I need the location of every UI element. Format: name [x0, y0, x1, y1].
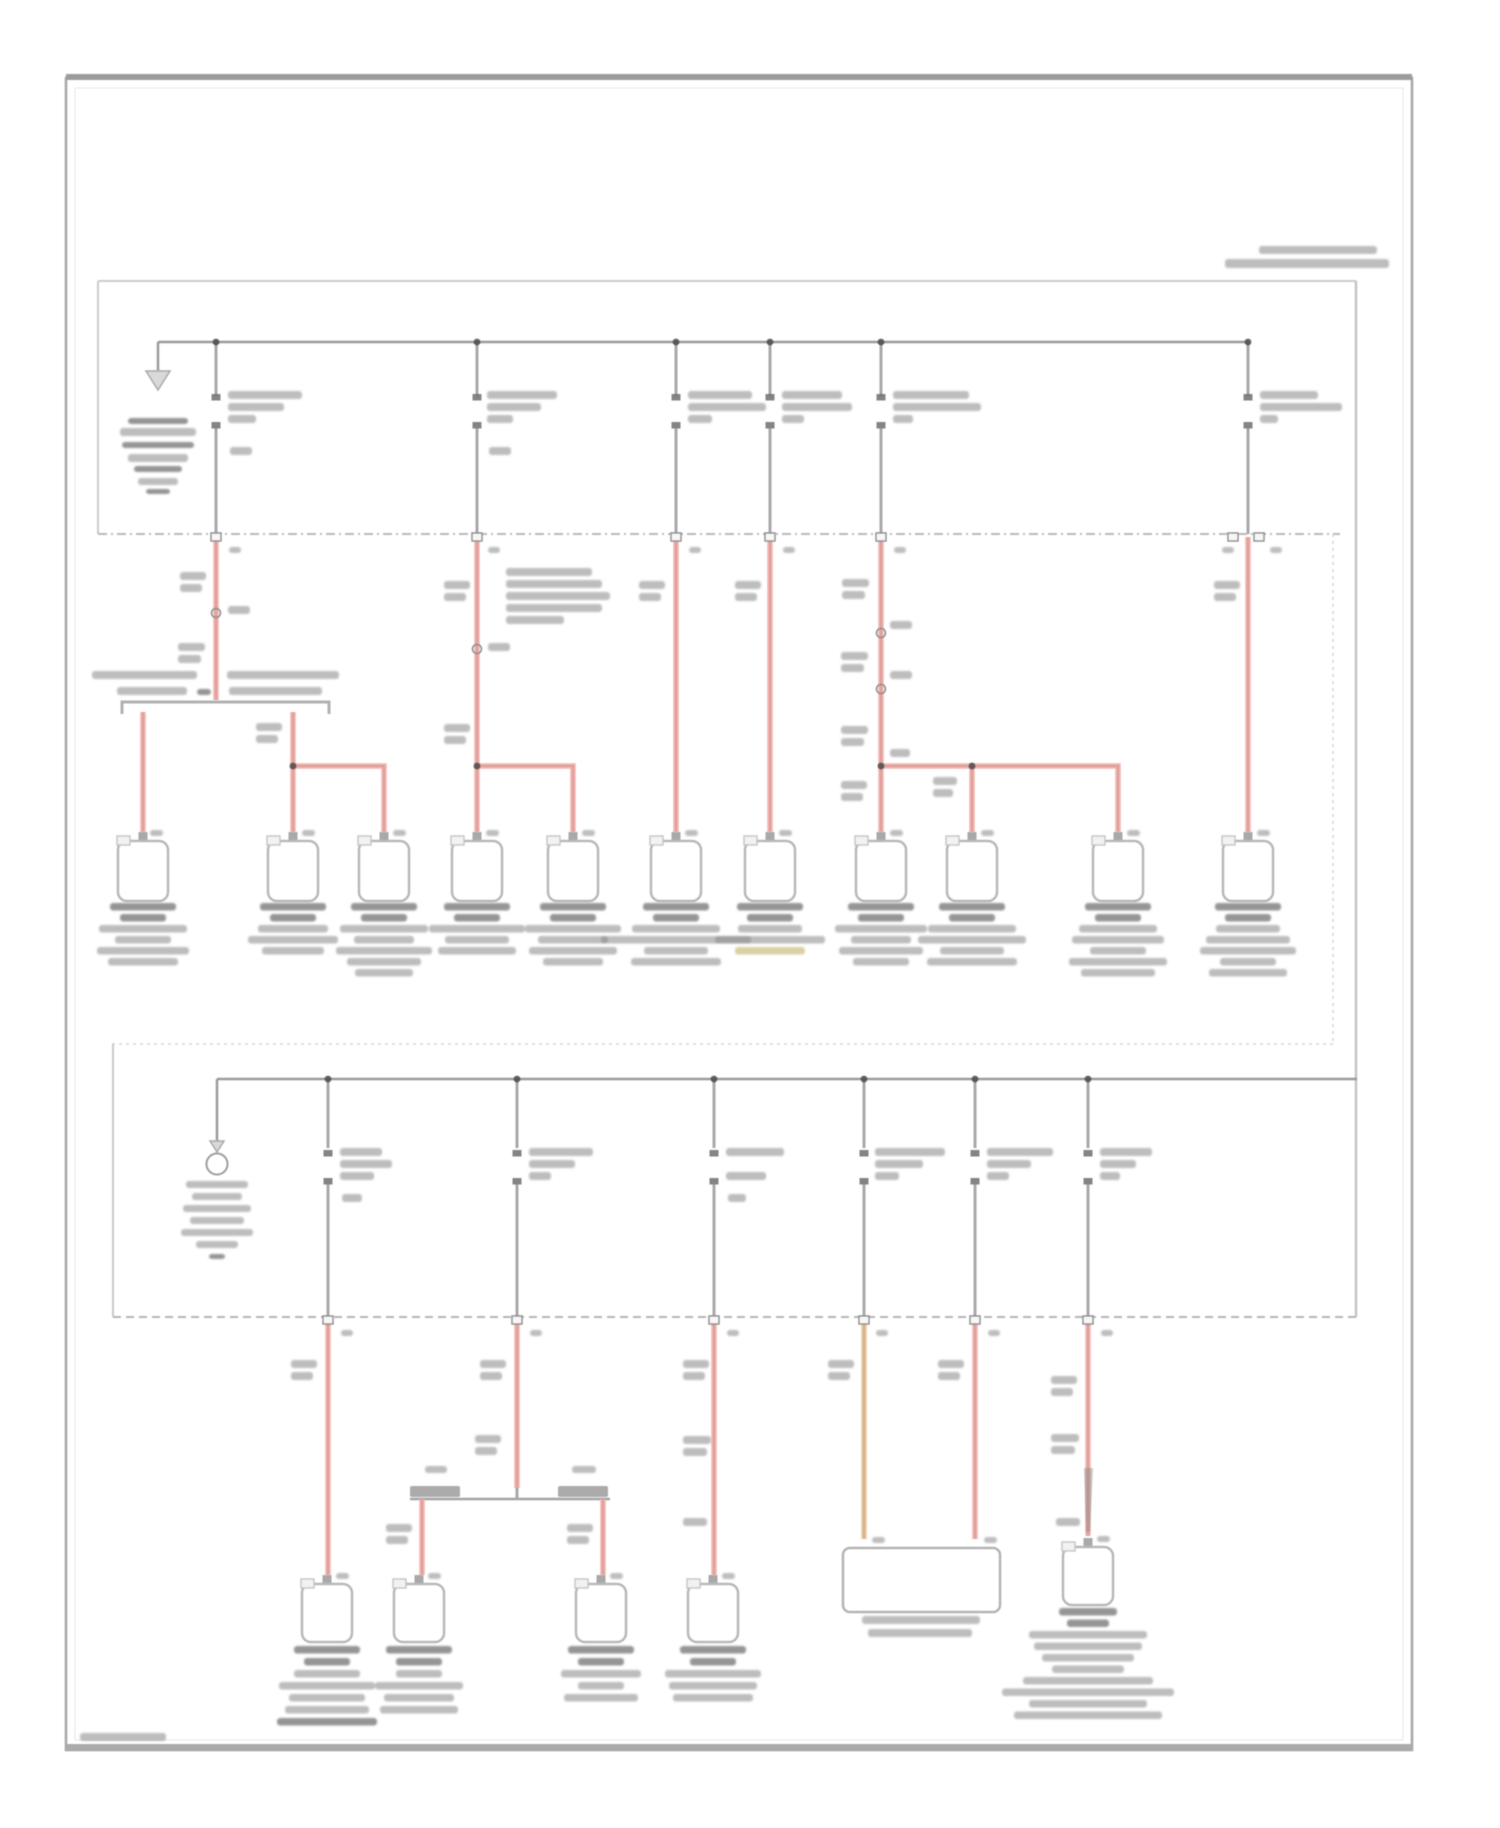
label-text-blurred [209, 1254, 225, 1259]
fuse-terminal-icon [971, 1150, 980, 1157]
junction-dot-icon [861, 1076, 868, 1083]
label-text-blurred [862, 1616, 980, 1624]
label-text-blurred [1260, 391, 1318, 399]
label-text-blurred [386, 1536, 408, 1544]
label-text-blurred [183, 1205, 251, 1212]
fuse-terminal-icon [710, 1178, 719, 1185]
component-label-text-blurred [851, 936, 911, 944]
label-text-blurred [92, 671, 197, 679]
label-text-blurred [1127, 830, 1140, 836]
connector-pin-icon [765, 533, 775, 541]
component-label-text-blurred [289, 1694, 365, 1702]
label-text-blurred [876, 1330, 888, 1336]
component-cylinder-icon [576, 1584, 626, 1642]
component-cylinder-icon [1063, 1547, 1113, 1605]
label-text-blurred [488, 643, 510, 651]
component-notch-icon [358, 836, 371, 845]
component-label-text-blurred [396, 1670, 442, 1678]
label-text-blurred [444, 724, 470, 732]
label-text-blurred [890, 671, 912, 679]
module-box-icon [843, 1548, 1000, 1612]
component-label-text-blurred [1059, 1608, 1117, 1616]
component-label-text-blurred [445, 936, 509, 944]
component-label-text-blurred [853, 958, 909, 966]
label-text-blurred [480, 1360, 506, 1368]
component-label-text-blurred [429, 925, 525, 933]
component-notch-icon [1222, 836, 1235, 845]
label-text-blurred [128, 454, 188, 462]
label-text-blurred [340, 1172, 374, 1180]
label-text-blurred [342, 1194, 362, 1202]
fuse-terminal-icon [1084, 1150, 1093, 1157]
label-text-blurred [683, 1372, 705, 1380]
fuse-terminal-icon [877, 422, 886, 429]
label-text-blurred [80, 1733, 166, 1741]
component-label-text-blurred [120, 914, 166, 922]
component-label-text-blurred [1200, 947, 1296, 955]
fuse-terminal-icon [766, 394, 775, 401]
component-notch-icon [687, 1579, 700, 1588]
junction-dot-icon [972, 1076, 979, 1083]
component-label-text-blurred [738, 925, 802, 933]
component-label-text-blurred [336, 947, 432, 955]
label-text-blurred [688, 415, 712, 423]
component-label-text-blurred [564, 1694, 638, 1702]
label-text-blurred [1097, 1536, 1110, 1542]
label-text-blurred [782, 391, 842, 399]
label-text-blurred [722, 1573, 735, 1579]
label-text-blurred [893, 403, 981, 411]
component-cylinder-icon [856, 841, 906, 901]
label-text-blurred [988, 1330, 1000, 1336]
component-label-text-blurred [665, 1670, 761, 1678]
label-text-blurred [1051, 1388, 1073, 1396]
label-text-blurred [256, 735, 278, 743]
label-text-blurred [735, 593, 757, 601]
label-text-blurred [230, 447, 252, 455]
component-label-text-blurred [304, 1658, 350, 1666]
junction-dot-icon [514, 1076, 521, 1083]
label-text-blurred [475, 1447, 497, 1455]
label-text-blurred [186, 1181, 248, 1188]
label-text-blurred [529, 1160, 575, 1168]
junction-dot-icon [878, 763, 885, 770]
component-label-text-blurred [1002, 1689, 1174, 1697]
component-notch-icon [1062, 1542, 1075, 1551]
label-text-blurred [1259, 246, 1377, 254]
component-pin-icon [473, 832, 482, 841]
label-text-blurred [487, 391, 557, 399]
component-label-text-blurred [347, 958, 421, 966]
label-text-blurred [229, 547, 241, 553]
fuse-terminal-icon [1244, 422, 1253, 429]
component-label-text-blurred [1225, 914, 1271, 922]
label-text-blurred [1051, 1446, 1075, 1454]
label-text-blurred [444, 593, 466, 601]
component-label-text-blurred [115, 936, 171, 944]
label-text-blurred [506, 568, 592, 576]
component-notch-icon [301, 1579, 314, 1588]
fuse-terminal-icon [860, 1178, 869, 1185]
label-text-blurred [1260, 415, 1278, 423]
label-text-blurred [1051, 1376, 1077, 1384]
connector-pin-icon [1083, 1316, 1093, 1324]
label-text-blurred [291, 1360, 317, 1368]
label-text-blurred [134, 466, 182, 472]
label-text-blurred [506, 604, 602, 612]
bus-bar-terminal-icon [558, 1486, 608, 1497]
label-text-blurred [683, 1518, 707, 1526]
fuse-terminal-icon [473, 394, 482, 401]
label-text-blurred [987, 1160, 1031, 1168]
label-text-blurred [529, 1172, 551, 1180]
label-text-blurred [122, 442, 194, 448]
label-text-blurred [228, 391, 302, 399]
component-notch-icon [547, 836, 560, 845]
label-text-blurred [828, 1372, 850, 1380]
label-text-blurred [828, 1360, 854, 1368]
label-text-blurred [487, 403, 541, 411]
component-label-text-blurred [444, 903, 510, 911]
junction-dot-icon [969, 763, 976, 770]
power-wire-core [881, 766, 1118, 832]
component-cylinder-icon [359, 841, 409, 901]
label-text-blurred [341, 1330, 353, 1336]
label-text-blurred [728, 1194, 746, 1202]
component-notch-icon [650, 836, 663, 845]
label-text-blurred [639, 593, 661, 601]
connector-pin-icon [970, 1316, 980, 1324]
component-label-text-blurred [550, 914, 596, 922]
label-text-blurred [1260, 403, 1342, 411]
component-label-text-blurred [294, 1646, 360, 1654]
label-text-blurred [336, 1573, 349, 1579]
label-text-blurred [782, 415, 804, 423]
component-cylinder-icon [947, 841, 997, 901]
component-label-text-blurred [1206, 936, 1290, 944]
component-cylinder-icon [745, 841, 795, 901]
fuse-terminal-icon [513, 1150, 522, 1157]
component-notch-icon [393, 1579, 406, 1588]
component-label-text-blurred [669, 1682, 757, 1690]
fuse-terminal-icon [473, 422, 482, 429]
component-label-text-blurred [396, 1658, 442, 1666]
label-text-blurred [489, 447, 511, 455]
power-wire-core [477, 766, 573, 832]
label-text-blurred [683, 1360, 709, 1368]
component-pin-icon [766, 832, 775, 841]
label-text-blurred [178, 643, 205, 651]
component-notch-icon [451, 836, 464, 845]
component-label-text-blurred [1215, 903, 1281, 911]
label-text-blurred [688, 391, 752, 399]
ground-triangle-icon [146, 371, 170, 390]
label-text-blurred [610, 1573, 623, 1579]
component-label-text-blurred [386, 1646, 452, 1654]
label-text-blurred [890, 749, 910, 757]
component-label-text-blurred [248, 936, 338, 944]
label-text-blurred [875, 1160, 923, 1168]
bus-bar-terminal-icon [410, 1486, 460, 1497]
connector-pin-icon [876, 533, 886, 541]
label-text-blurred [256, 723, 282, 731]
label-text-blurred [893, 391, 969, 399]
component-label-text-blurred [538, 936, 608, 944]
component-label-text-blurred [949, 914, 995, 922]
connector-pin-icon [472, 533, 482, 541]
wiring-diagram-canvas [0, 0, 1500, 1828]
component-label-text-blurred [1023, 1677, 1153, 1685]
component-pin-icon [415, 1575, 424, 1584]
power-source-circle-icon [207, 1154, 228, 1175]
component-label-text-blurred [578, 1682, 624, 1690]
component-notch-icon [946, 836, 959, 845]
label-text-blurred [875, 1148, 945, 1156]
document-page [0, 0, 1500, 1828]
label-text-blurred [197, 689, 211, 695]
label-text-blurred [138, 478, 178, 485]
label-text-blurred [842, 591, 865, 599]
fuse-terminal-icon [710, 1150, 719, 1157]
component-label-text-blurred [1034, 1643, 1142, 1651]
component-label-text-blurred [438, 947, 516, 955]
component-label-text-blurred [858, 914, 904, 922]
component-label-text-blurred [543, 958, 603, 966]
label-text-blurred [688, 403, 766, 411]
label-text-blurred [987, 1172, 1009, 1180]
connector-pin-icon [1228, 533, 1238, 541]
label-text-blurred [227, 671, 339, 679]
label-text-blurred [340, 1148, 382, 1156]
label-text-blurred [428, 1573, 441, 1579]
label-text-blurred [506, 592, 610, 600]
label-text-blurred [1056, 1518, 1080, 1526]
label-text-blurred [872, 1537, 885, 1543]
component-label-text-blurred [525, 925, 621, 933]
component-label-text-blurred [1052, 1666, 1124, 1674]
label-text-blurred [506, 616, 564, 624]
component-label-text-blurred [454, 914, 500, 922]
component-label-text-blurred [384, 1694, 454, 1702]
component-pin-icon [1244, 832, 1253, 841]
label-text-blurred [842, 579, 869, 587]
component-label-text-blurred [285, 1706, 369, 1714]
component-label-text-blurred [839, 947, 923, 955]
fuse-terminal-icon [877, 394, 886, 401]
component-cylinder-icon [268, 841, 318, 901]
fuse-terminal-icon [513, 1178, 522, 1185]
power-wire [293, 766, 384, 832]
label-text-blurred [506, 580, 602, 588]
component-label-text-blurred [690, 1658, 736, 1666]
component-label-text-blurred [110, 903, 176, 911]
label-text-blurred [425, 1466, 447, 1473]
component-label-text-blurred [294, 1670, 360, 1678]
component-label-text-blurred [108, 958, 178, 966]
component-label-text-blurred [835, 925, 927, 933]
junction-dot-icon [878, 339, 885, 346]
junction-dot-icon [1245, 339, 1252, 346]
junction-dot-icon [711, 1076, 718, 1083]
label-text-blurred [683, 1436, 711, 1444]
component-cylinder-icon [651, 841, 701, 901]
label-text-blurred [529, 1148, 593, 1156]
component-label-text-blurred [1085, 903, 1151, 911]
label-text-blurred [841, 793, 863, 801]
label-text-blurred [480, 1372, 502, 1380]
junction-dot-icon [767, 339, 774, 346]
label-text-blurred [302, 830, 315, 836]
component-label-text-blurred [540, 903, 606, 911]
component-label-text-blurred [927, 958, 1017, 966]
label-text-blurred [841, 726, 868, 734]
component-label-text-blurred [1067, 1620, 1109, 1628]
label-text-blurred [727, 1330, 739, 1336]
label-text-blurred [779, 830, 792, 836]
component-label-text-blurred [1072, 936, 1164, 944]
label-text-blurred [890, 621, 912, 629]
component-pin-icon [968, 832, 977, 841]
component-pin-icon [597, 1575, 606, 1584]
diagram-structure-layer [66, 77, 1412, 1750]
label-text-blurred [683, 1448, 707, 1456]
label-text-blurred [735, 581, 761, 589]
junction-dot-icon [290, 763, 297, 770]
junction-dot-icon [474, 339, 481, 346]
component-label-text-blurred [260, 903, 326, 911]
component-cylinder-icon [394, 1584, 444, 1642]
component-label-text-blurred [270, 914, 316, 922]
component-label-text-blurred [1042, 1654, 1134, 1662]
component-label-text-blurred [632, 925, 720, 933]
label-text-blurred [1257, 830, 1270, 836]
label-text-blurred [1100, 1148, 1152, 1156]
fuse-terminal-icon [860, 1150, 869, 1157]
component-label-text-blurred [737, 903, 803, 911]
component-notch-icon [1092, 836, 1105, 845]
fuse-terminal-icon [766, 422, 775, 429]
component-label-text-blurred [355, 969, 413, 977]
label-text-blurred [228, 606, 250, 614]
connector-pin-icon [512, 1316, 522, 1324]
label-text-blurred [444, 581, 470, 589]
component-label-text-blurred [340, 925, 428, 933]
component-label-text-blurred [939, 903, 1005, 911]
power-wire [881, 766, 1118, 832]
label-text-blurred [894, 547, 906, 553]
label-text-blurred [893, 415, 913, 423]
label-text-blurred [1100, 1172, 1120, 1180]
label-text-blurred [567, 1536, 589, 1544]
label-text-blurred [228, 403, 284, 411]
component-label-text-blurred [351, 903, 417, 911]
component-label-text-blurred [1220, 958, 1276, 966]
label-text-blurred [291, 1372, 313, 1380]
label-text-blurred [783, 547, 795, 553]
label-text-blurred [938, 1372, 960, 1380]
label-text-blurred [782, 403, 852, 411]
label-text-blurred [572, 1466, 596, 1473]
component-label-text-blurred [279, 1682, 375, 1690]
component-notch-icon [575, 1579, 588, 1588]
label-text-blurred [1270, 547, 1282, 553]
label-text-blurred [120, 428, 196, 436]
label-text-blurred [393, 830, 406, 836]
component-cylinder-icon [118, 841, 168, 901]
power-wire [477, 766, 573, 832]
label-text-blurred [192, 1193, 242, 1200]
label-text-blurred [150, 830, 163, 836]
label-text-blurred [933, 777, 957, 785]
label-text-blurred [128, 418, 188, 424]
component-cylinder-icon [1223, 841, 1273, 901]
component-pin-icon [569, 832, 578, 841]
fuse-terminal-icon [1084, 1178, 1093, 1185]
component-label-text-blurred [631, 958, 721, 966]
component-label-text-blurred [747, 914, 793, 922]
component-label-text-blurred [735, 947, 805, 955]
component-label-text-blurred [258, 925, 328, 933]
component-label-text-blurred [673, 1694, 753, 1702]
component-label-text-blurred [361, 914, 407, 922]
label-text-blurred [933, 789, 953, 797]
label-text-blurred [987, 1148, 1053, 1156]
label-text-blurred [196, 1241, 238, 1248]
component-label-text-blurred [99, 925, 187, 933]
component-label-text-blurred [375, 1682, 463, 1690]
label-text-blurred [890, 830, 903, 836]
component-notch-icon [744, 836, 757, 845]
connector-pin-icon [1254, 533, 1264, 541]
component-label-text-blurred [380, 1706, 458, 1714]
label-text-blurred [841, 652, 868, 660]
junction-dot-icon [1085, 1076, 1092, 1083]
component-pin-icon [877, 832, 886, 841]
label-text-blurred [981, 830, 994, 836]
label-text-blurred [1222, 547, 1234, 553]
label-text-blurred [487, 415, 513, 423]
component-notch-icon [267, 836, 280, 845]
component-label-text-blurred [1079, 925, 1157, 933]
label-text-blurred [488, 547, 500, 553]
component-label-text-blurred [1069, 958, 1167, 966]
diagram-blurred-text-layer [80, 246, 1389, 1741]
component-pin-icon [1114, 832, 1123, 841]
component-label-text-blurred [848, 903, 914, 911]
label-text-blurred [228, 415, 256, 423]
label-text-blurred [582, 830, 595, 836]
component-pin-icon [709, 1575, 718, 1584]
label-text-blurred [178, 655, 201, 663]
component-label-text-blurred [1029, 1631, 1147, 1639]
connector-pin-icon [859, 1316, 869, 1324]
label-text-blurred [868, 1629, 972, 1637]
label-text-blurred [689, 547, 701, 553]
component-label-text-blurred [262, 947, 324, 955]
fuse-terminal-icon [212, 394, 221, 401]
label-text-blurred [530, 1330, 542, 1336]
component-label-text-blurred [644, 947, 708, 955]
component-label-text-blurred [940, 947, 1004, 955]
fuse-block-connector-strip-icon [122, 702, 329, 714]
label-text-blurred [229, 687, 322, 695]
label-text-blurred [567, 1524, 593, 1532]
label-text-blurred [386, 1524, 412, 1532]
fuse-terminal-icon [672, 394, 681, 401]
component-pin-icon [323, 1575, 332, 1584]
label-text-blurred [340, 1160, 392, 1168]
component-label-text-blurred [578, 1658, 624, 1666]
